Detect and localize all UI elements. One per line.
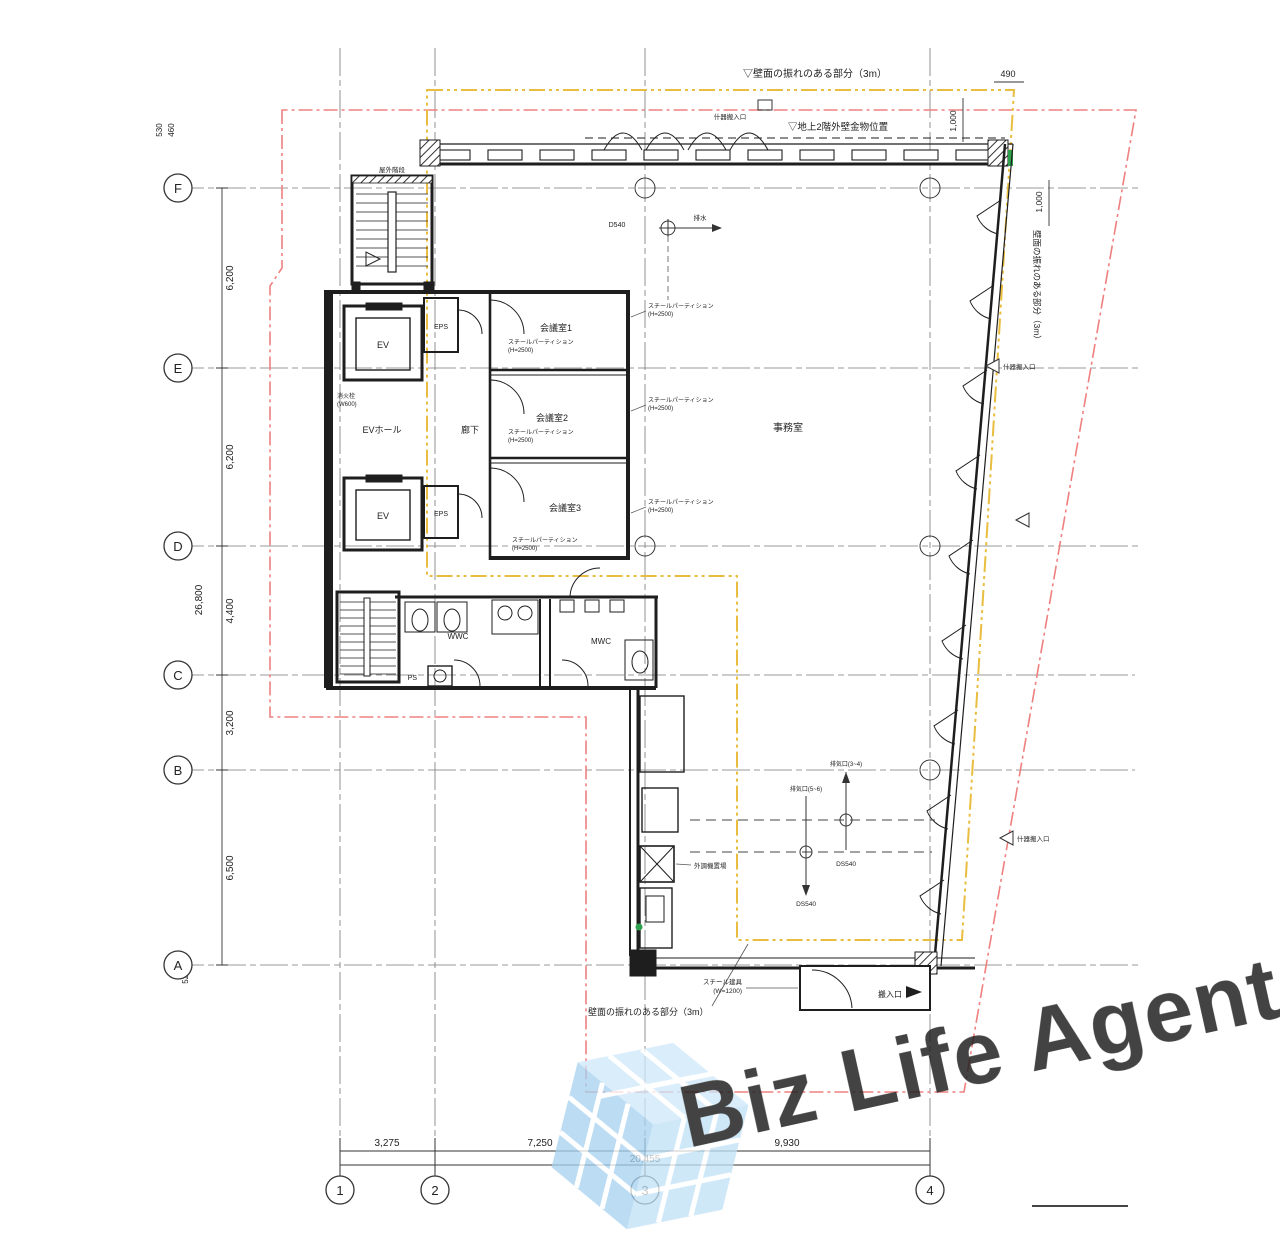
svg-text:(H=2500): (H=2500) bbox=[648, 406, 673, 412]
room-label-ps: PS bbox=[408, 675, 418, 682]
svg-text:(H=2500): (H=2500) bbox=[648, 312, 673, 318]
upper-wall-note: ▽地上2階外壁金物位置 bbox=[788, 121, 888, 133]
room-label-eps2: EPS bbox=[434, 511, 448, 518]
svg-text:D540: D540 bbox=[609, 222, 626, 229]
svg-text:A: A bbox=[174, 958, 183, 973]
svg-text:3,275: 3,275 bbox=[374, 1138, 399, 1149]
svg-text:消火栓: 消火栓 bbox=[337, 392, 355, 400]
svg-text:DS540: DS540 bbox=[836, 861, 856, 868]
meeting-rooms bbox=[490, 292, 628, 598]
outdoor-stair-label: 屋外階段 bbox=[379, 165, 406, 174]
svg-text:B: B bbox=[174, 763, 183, 778]
offset-line-yellow bbox=[427, 90, 1014, 940]
steel-door-callout: スチール建具 (W=1200) bbox=[703, 977, 798, 995]
svg-text:3,200: 3,200 bbox=[225, 710, 236, 735]
fixture-entrance-mid: 什器搬入口 bbox=[1003, 362, 1036, 371]
svg-text:4,400: 4,400 bbox=[225, 598, 236, 623]
room-label-mwc: MWC bbox=[591, 637, 611, 646]
floor-plan-svg: ▽壁面の振れのある部分（3m） 壁面の振れのある部分（3m） 壁面の振れのある部… bbox=[0, 0, 1280, 1254]
grid-bubbles-rows bbox=[164, 174, 192, 979]
top-exterior-wall bbox=[420, 133, 1013, 166]
svg-text:D: D bbox=[173, 539, 182, 554]
svg-text:スチールパーティション: スチールパーティション bbox=[512, 537, 578, 544]
setback-note-right: 壁面の振れのある部分（3m） bbox=[1032, 230, 1042, 344]
fixture-entrance-low: 什器搬入口 bbox=[1017, 834, 1050, 843]
svg-text:1,000: 1,000 bbox=[948, 110, 958, 132]
svg-text:490: 490 bbox=[1000, 69, 1015, 79]
svg-text:スチール建具: スチール建具 bbox=[703, 977, 743, 986]
svg-text:(H=2500): (H=2500) bbox=[508, 438, 533, 444]
svg-text:26,800: 26,800 bbox=[194, 584, 205, 615]
annotation-d540-top: D540 排水 bbox=[609, 213, 722, 300]
svg-text:壁面の振れのある部分（3m）: 壁面の振れのある部分（3m） bbox=[588, 1006, 709, 1017]
room-label-corridor: 廊下 bbox=[461, 424, 479, 435]
room-label-wwc: WWC bbox=[448, 632, 469, 641]
svg-text:1,000: 1,000 bbox=[1034, 191, 1044, 213]
svg-text:排気口(5~6): 排気口(5~6) bbox=[790, 785, 822, 793]
stairwell-top bbox=[352, 176, 432, 284]
svg-text:7,250: 7,250 bbox=[527, 1138, 552, 1149]
room-label-ev2: EV bbox=[377, 511, 389, 521]
room-label-meeting1: 会議室1 bbox=[540, 322, 572, 333]
svg-text:6,200: 6,200 bbox=[225, 444, 236, 469]
lower-corridor bbox=[630, 688, 684, 956]
svg-text:6,200: 6,200 bbox=[225, 265, 236, 290]
svg-text:(W600): (W600) bbox=[337, 402, 357, 408]
room-label-ev-hall: EVホール bbox=[362, 425, 401, 435]
svg-text:スチールパーティション: スチールパーティション bbox=[648, 303, 714, 310]
svg-text:外調機置場: 外調機置場 bbox=[694, 861, 727, 870]
partition-callouts: スチールパーティション (H=2500) スチールパーティション (H=2500… bbox=[508, 303, 714, 552]
svg-text:C: C bbox=[173, 668, 182, 683]
room-label-office: 事務室 bbox=[773, 421, 803, 434]
svg-text:6,500: 6,500 bbox=[225, 855, 236, 880]
svg-text:E: E bbox=[174, 361, 183, 376]
svg-text:排気口(3~4): 排気口(3~4) bbox=[830, 760, 862, 768]
svg-text:2: 2 bbox=[431, 1183, 438, 1198]
svg-text:搬入口: 搬入口 bbox=[878, 989, 902, 999]
ahu-callout: 外調機置場 bbox=[676, 861, 727, 870]
annotation-vents: 排気口(5~6) DS540 排気口(3~4) DS540 bbox=[690, 760, 935, 908]
floor-plan-canvas: ▽壁面の振れのある部分（3m） 壁面の振れのある部分（3m） 壁面の振れのある部… bbox=[0, 0, 1280, 1254]
svg-text:スチールパーティション: スチールパーティション bbox=[648, 499, 714, 506]
svg-text:(W=1200): (W=1200) bbox=[713, 988, 742, 995]
room-label-eps1: EPS bbox=[434, 324, 448, 331]
room-label-meeting2: 会議室2 bbox=[536, 412, 568, 423]
bottom-wall bbox=[630, 950, 975, 1010]
svg-text:(H=2500): (H=2500) bbox=[648, 508, 673, 514]
room-label-ev1: EV bbox=[377, 340, 389, 350]
svg-text:DS540: DS540 bbox=[796, 901, 816, 908]
room-label-meeting3: 会議室3 bbox=[549, 502, 581, 513]
svg-text:1: 1 bbox=[336, 1183, 343, 1198]
svg-text:(H=2500): (H=2500) bbox=[508, 348, 533, 354]
svg-text:460: 460 bbox=[167, 123, 176, 137]
svg-text:(H=2500): (H=2500) bbox=[512, 546, 537, 552]
watermark-text: Biz Life Agent bbox=[671, 938, 1280, 1167]
svg-text:4: 4 bbox=[926, 1183, 933, 1198]
svg-text:スチールパーティション: スチールパーティション bbox=[648, 397, 714, 404]
svg-text:F: F bbox=[174, 181, 182, 196]
fixture-entrance-top: 什器搬入口 bbox=[714, 112, 747, 121]
svg-text:排水: 排水 bbox=[694, 213, 708, 222]
stairwell-bottom bbox=[337, 592, 399, 682]
setback-note-top: ▽壁面の振れのある部分（3m） bbox=[743, 67, 887, 80]
svg-text:530: 530 bbox=[155, 123, 164, 137]
svg-text:スチールパーティション: スチールパーティション bbox=[508, 339, 574, 346]
svg-text:スチールパーティション: スチールパーティション bbox=[508, 429, 574, 436]
grid-bubble-row-labels: F E D C B A bbox=[173, 181, 182, 973]
green-mark-bottom bbox=[636, 924, 643, 931]
